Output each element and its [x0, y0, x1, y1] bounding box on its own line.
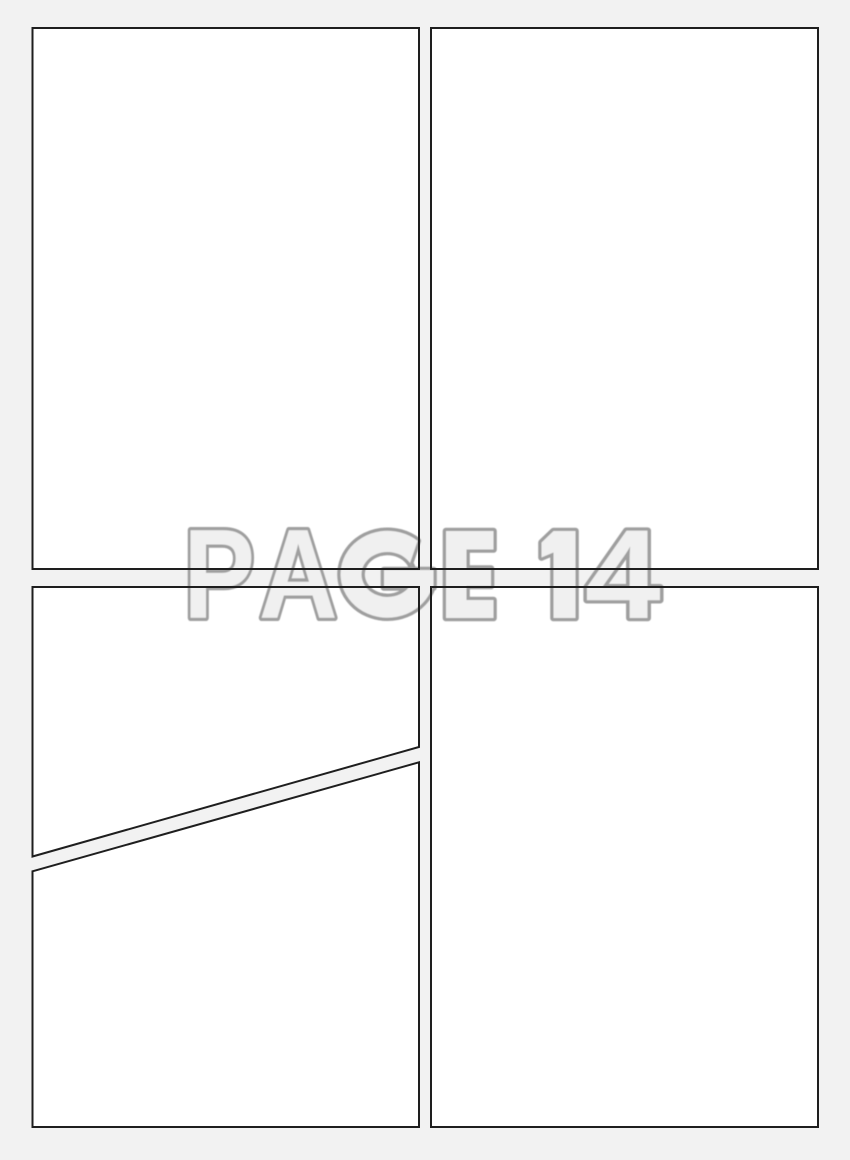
svg-text:P: P [183, 503, 255, 645]
svg-text:4: 4 [585, 503, 661, 645]
svg-text:A: A [259, 504, 338, 646]
